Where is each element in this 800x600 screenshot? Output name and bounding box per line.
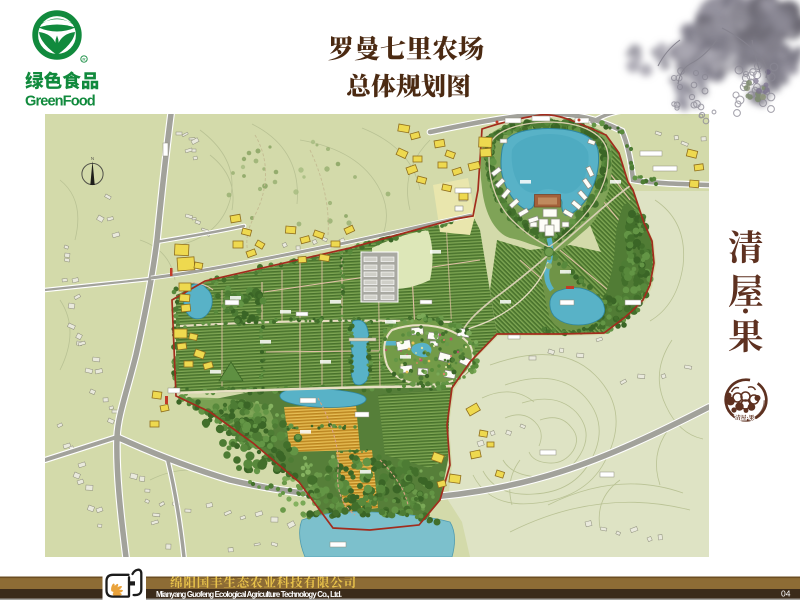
svg-text:GreenFood: GreenFood — [25, 94, 95, 110]
svg-text:Mianyang Guofeng Ecological Ag: Mianyang Guofeng Ecological Agriculture … — [156, 590, 342, 599]
svg-text:04: 04 — [781, 589, 791, 599]
